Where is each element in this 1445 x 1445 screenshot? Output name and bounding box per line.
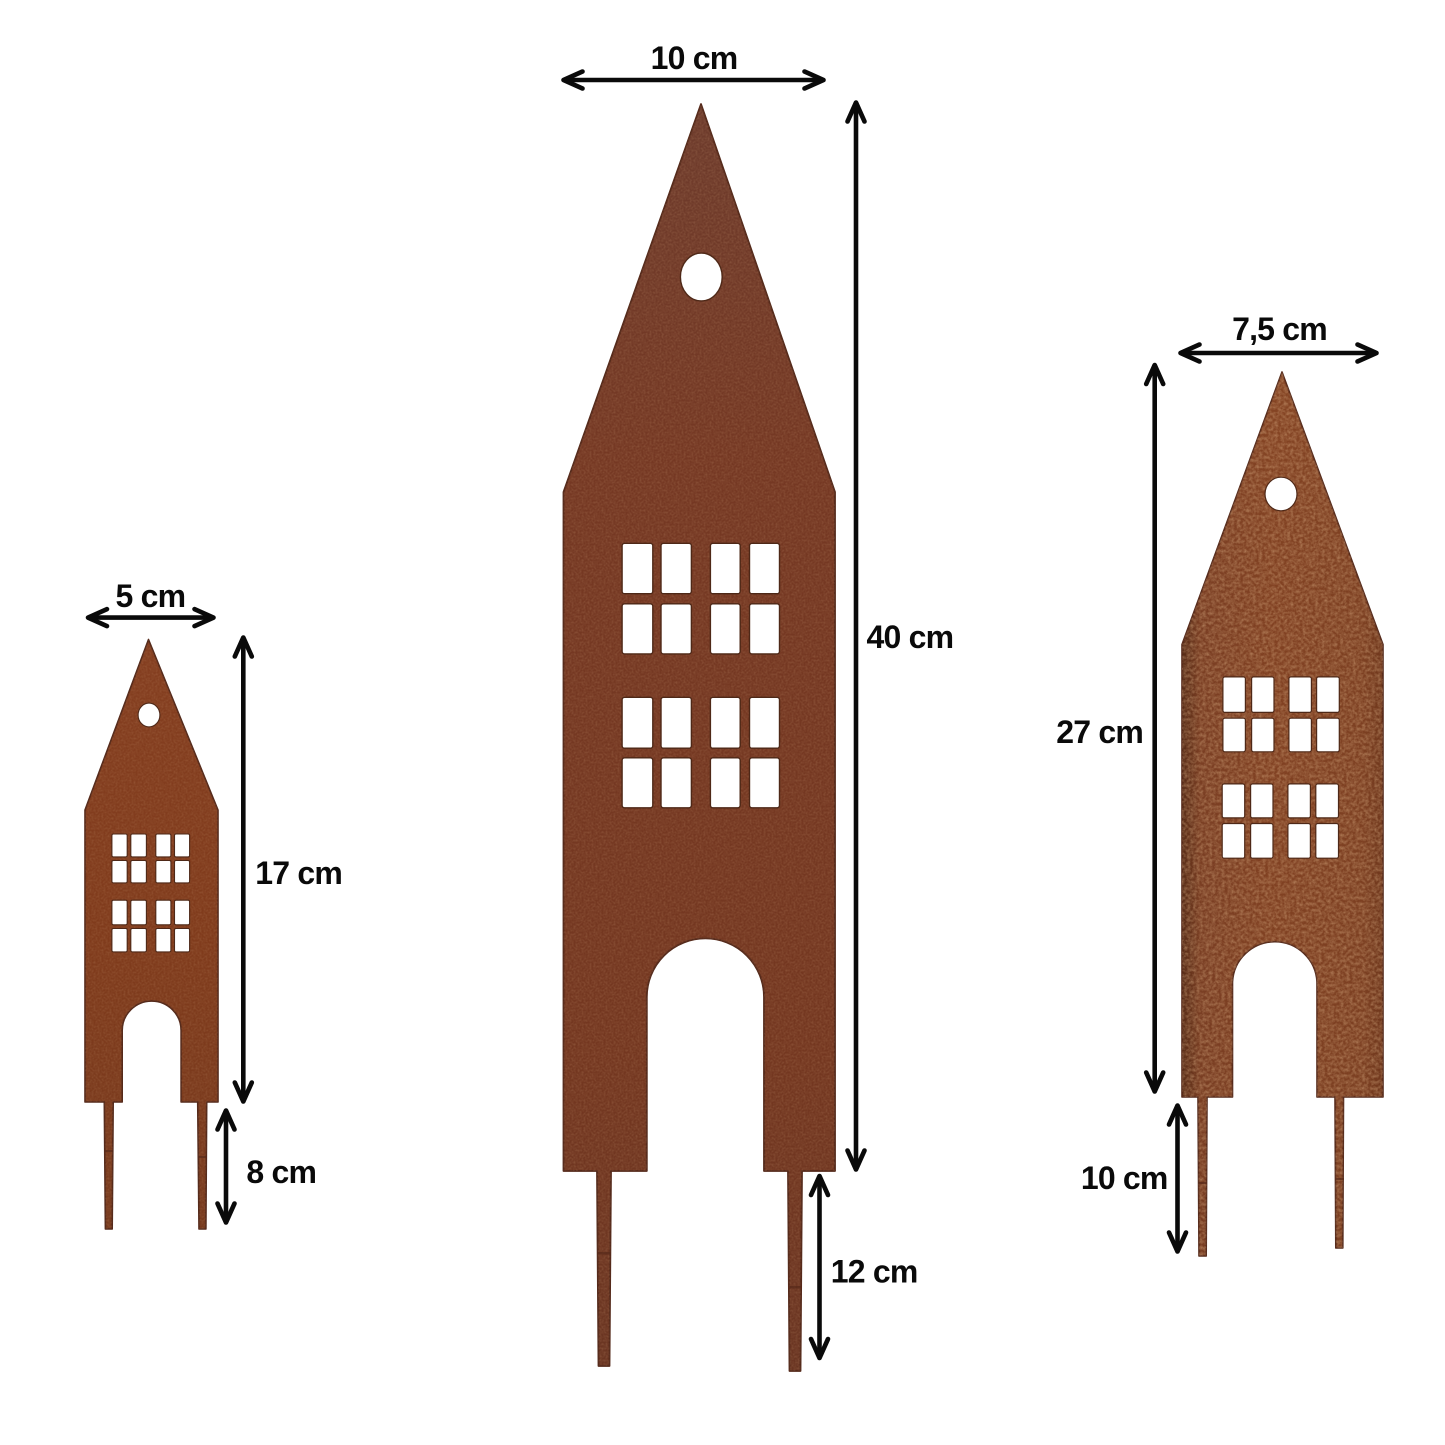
svg-text:17 cm: 17 cm	[255, 855, 342, 891]
svg-text:8 cm: 8 cm	[246, 1154, 316, 1190]
svg-text:12 cm: 12 cm	[831, 1253, 918, 1289]
svg-text:27 cm: 27 cm	[1056, 714, 1143, 750]
svg-text:10 cm: 10 cm	[651, 40, 738, 76]
svg-text:5 cm: 5 cm	[116, 578, 186, 614]
svg-text:40 cm: 40 cm	[867, 619, 954, 655]
svg-text:7,5 cm: 7,5 cm	[1232, 311, 1327, 347]
svg-text:10 cm: 10 cm	[1081, 1160, 1168, 1196]
